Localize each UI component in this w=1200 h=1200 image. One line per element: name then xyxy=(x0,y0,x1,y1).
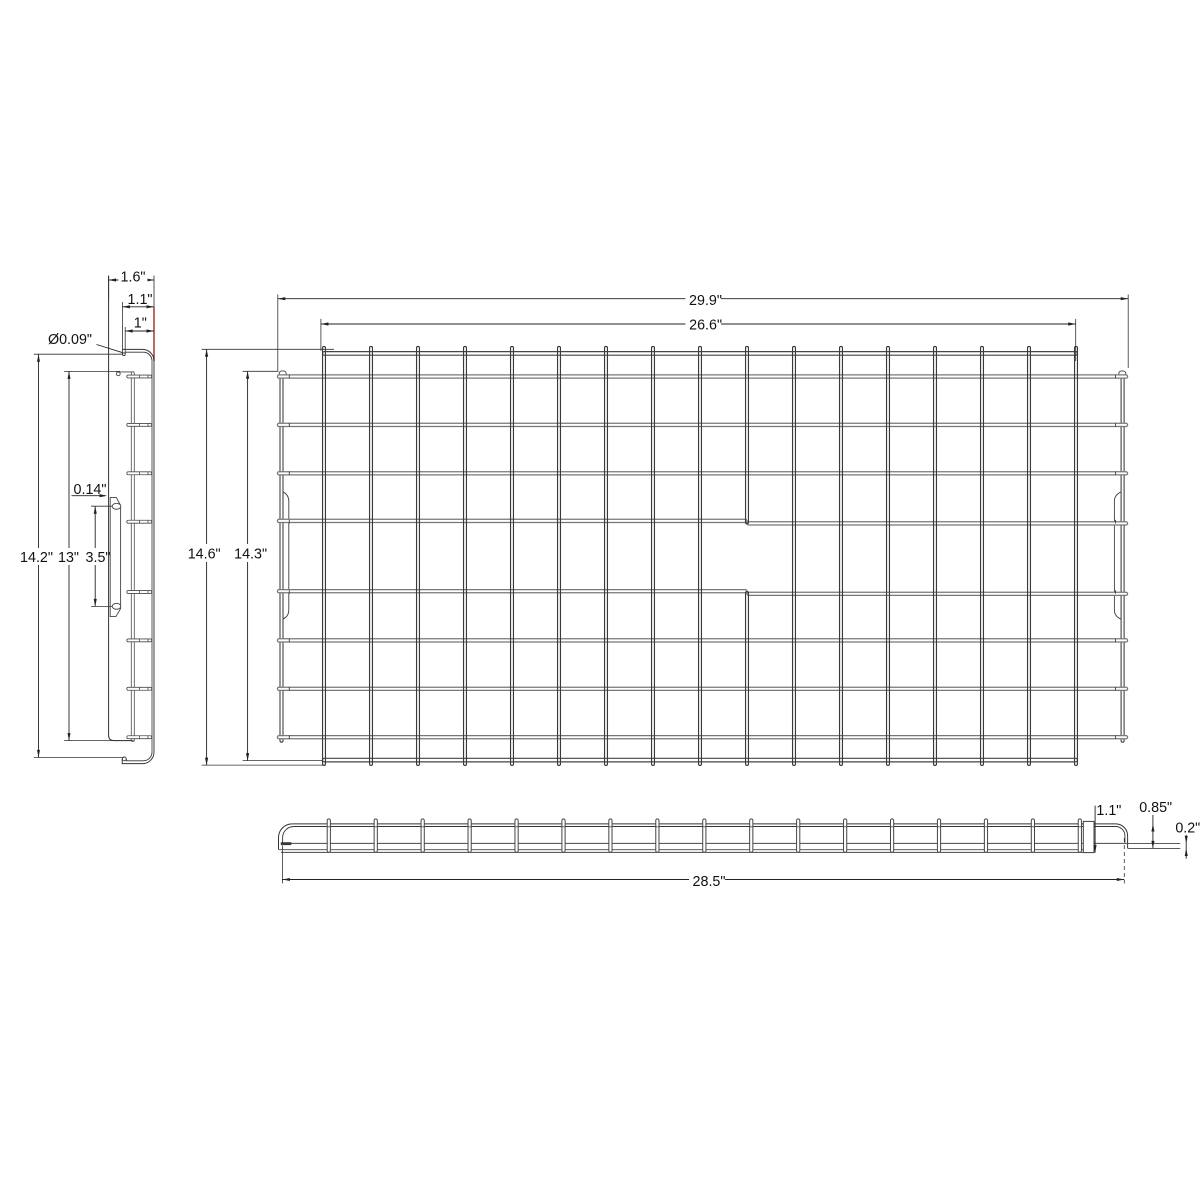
svg-text:0.14": 0.14" xyxy=(74,482,107,498)
svg-text:14.6": 14.6" xyxy=(188,547,221,563)
svg-text:14.3": 14.3" xyxy=(234,547,267,563)
svg-text:29.9": 29.9" xyxy=(689,293,722,309)
svg-text:1.1": 1.1" xyxy=(1096,803,1121,819)
svg-text:1.1": 1.1" xyxy=(128,292,153,308)
svg-text:13": 13" xyxy=(58,550,79,566)
svg-text:1": 1" xyxy=(134,316,147,332)
svg-text:1.6": 1.6" xyxy=(121,269,146,285)
svg-text:28.5": 28.5" xyxy=(693,874,726,890)
svg-text:0.2": 0.2" xyxy=(1175,820,1200,836)
svg-text:0.85": 0.85" xyxy=(1139,800,1172,816)
svg-text:26.6": 26.6" xyxy=(689,318,722,334)
svg-text:Ø0.09": Ø0.09" xyxy=(48,332,92,348)
svg-text:14.2": 14.2" xyxy=(20,550,53,566)
svg-text:3.5": 3.5" xyxy=(86,550,111,566)
